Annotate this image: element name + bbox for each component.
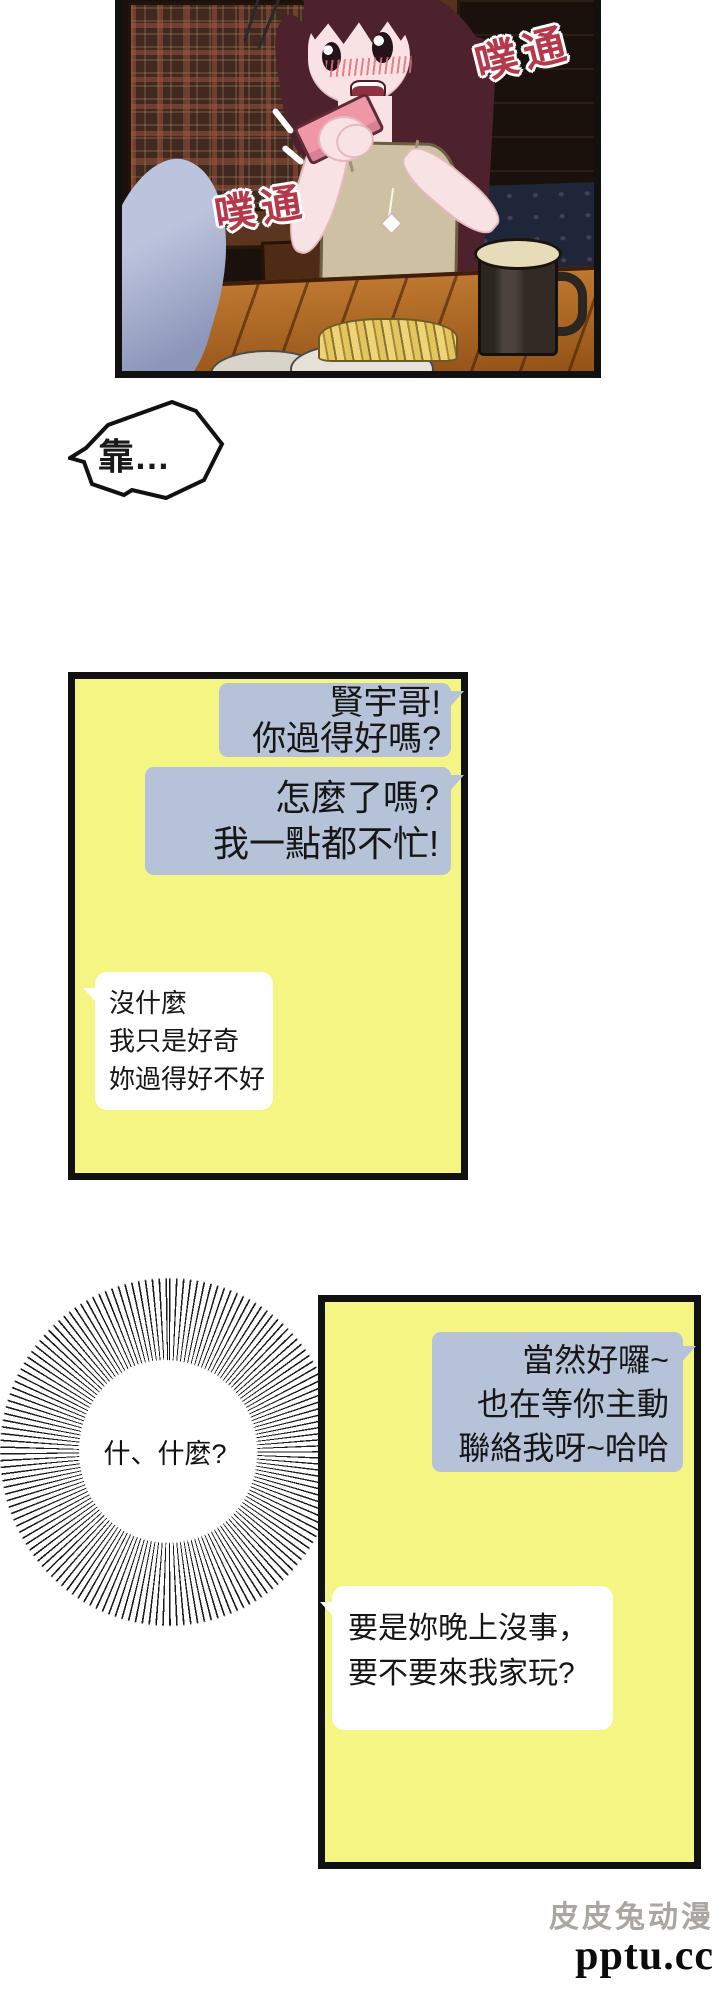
watermark-url: pptu.cc	[549, 1934, 714, 1978]
chat-panel-1: 賢宇哥! 你過得好嗎? 怎麼了嗎? 我一點都不忙! 沒什麼 我只是好奇 妳過得好…	[68, 672, 468, 1180]
chat-line: 要不要來我家玩?	[348, 1651, 613, 1696]
chat-bubble-sent: 怎麼了嗎? 我一點都不忙!	[145, 767, 451, 875]
bubble-tail-left	[83, 988, 97, 1003]
chat-line: 當然好囉~	[432, 1338, 669, 1382]
chat-line: 妳過得好不好	[109, 1060, 273, 1098]
chat-line: 我一點都不忙!	[145, 821, 439, 867]
chat-line: 也在等你主動	[432, 1382, 669, 1426]
comic-panel-bar-scene: 噗通 噗通	[115, 0, 601, 378]
chat-line: 你過得好嗎?	[219, 721, 441, 757]
chat-line: 聯絡我呀~哈哈	[432, 1426, 669, 1470]
watermark: 皮皮兔动漫 pptu.cc	[549, 1902, 714, 1978]
bubble-tail-right	[449, 691, 464, 708]
chat-bubble-sent: 賢宇哥! 你過得好嗎?	[219, 683, 451, 757]
chat-line: 沒什麼	[109, 984, 273, 1022]
chat-panel-2: 當然好囉~ 也在等你主動 聯絡我呀~哈哈 要是妳晚上沒事， 要不要來我家玩?	[318, 1295, 701, 1869]
chat-bubble-received: 沒什麼 我只是好奇 妳過得好不好	[95, 972, 273, 1110]
fries	[318, 318, 458, 362]
chat-line: 賢宇哥!	[219, 685, 441, 721]
chat-line: 怎麼了嗎?	[145, 775, 439, 821]
shout-bubble: 靠…	[68, 398, 228, 510]
watermark-site-name: 皮皮兔动漫	[549, 1902, 714, 1934]
chat-line: 要是妳晚上沒事，	[348, 1606, 613, 1651]
chat-line: 我只是好奇	[109, 1022, 273, 1060]
beer-foam	[474, 238, 562, 270]
bubble-tail-left	[320, 1602, 334, 1617]
burst-text: 什、什麼?	[79, 1360, 251, 1542]
chat-bubble-sent: 當然好囉~ 也在等你主動 聯絡我呀~哈哈	[432, 1332, 683, 1472]
chat-bubble-received: 要是妳晚上沒事， 要不要來我家玩?	[332, 1586, 613, 1730]
comic-page: 噗通 噗通 靠… 賢宇哥! 你過得好嗎? 怎麼了嗎? 我一點都不忙! 沒什麼 我…	[0, 0, 720, 1992]
bubble-tail-right	[449, 775, 464, 792]
shout-text: 靠…	[98, 428, 198, 480]
burst-bubble: 什、什麼?	[0, 1272, 344, 1632]
bubble-tail-right	[681, 1346, 696, 1363]
